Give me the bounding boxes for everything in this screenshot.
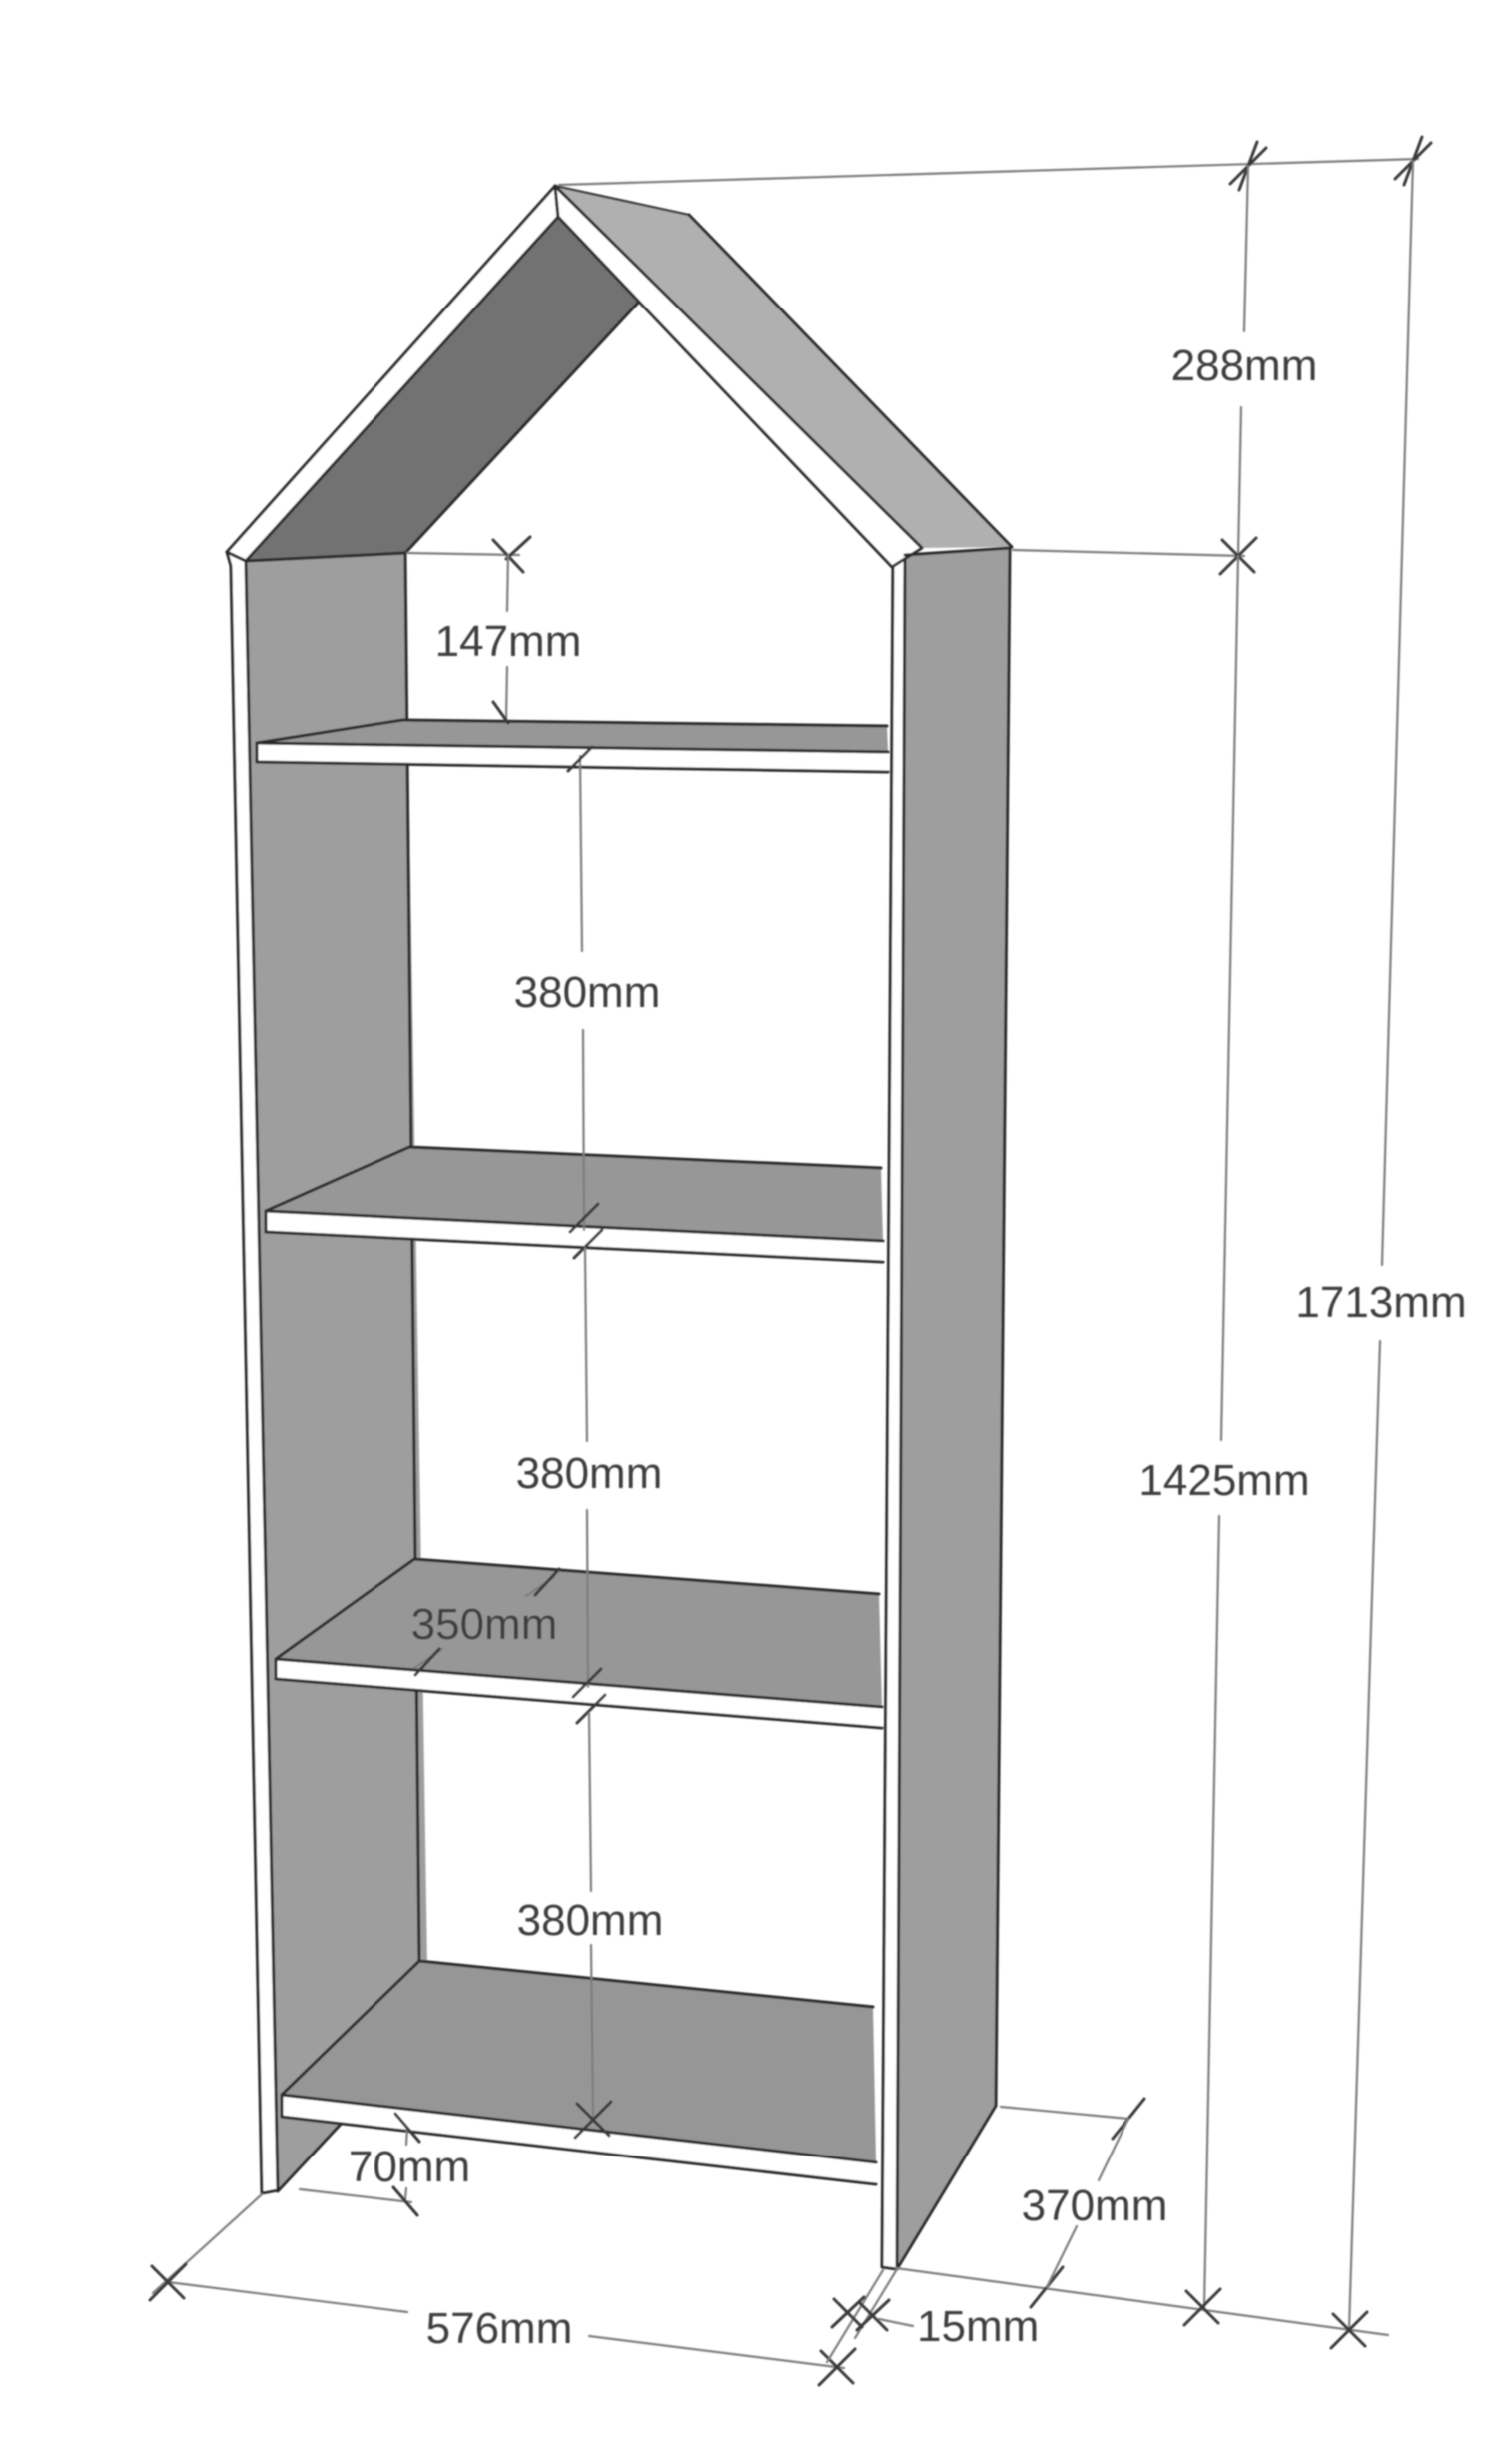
svg-text:147mm: 147mm: [435, 617, 582, 666]
svg-text:15mm: 15mm: [917, 2302, 1039, 2351]
svg-text:380mm: 380mm: [514, 968, 661, 1017]
svg-text:350mm: 350mm: [411, 1600, 558, 1649]
svg-text:288mm: 288mm: [1171, 341, 1318, 390]
svg-text:576mm: 576mm: [426, 2304, 573, 2353]
svg-text:380mm: 380mm: [516, 1449, 663, 1498]
svg-text:1425mm: 1425mm: [1138, 1456, 1309, 1505]
svg-text:1713mm: 1713mm: [1295, 1278, 1466, 1327]
svg-text:370mm: 370mm: [1022, 2181, 1168, 2230]
svg-text:70mm: 70mm: [349, 2143, 470, 2191]
svg-text:380mm: 380mm: [517, 1896, 664, 1945]
